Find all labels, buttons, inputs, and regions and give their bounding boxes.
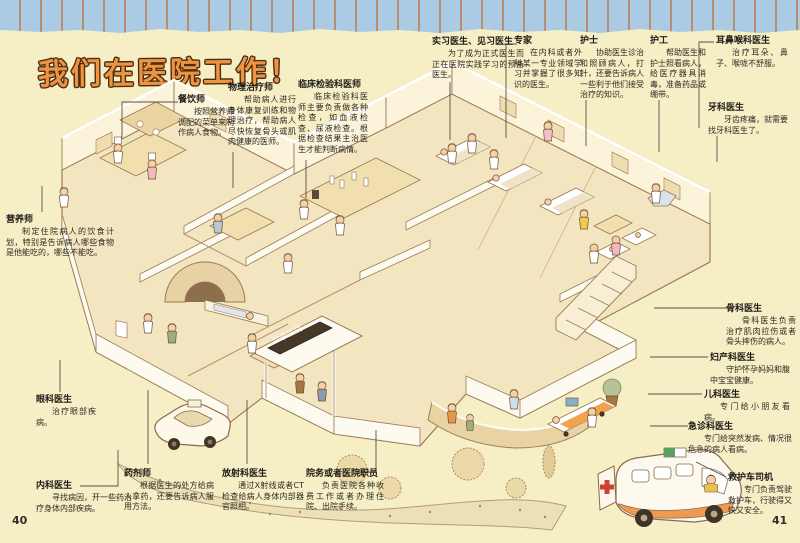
patient-figure xyxy=(214,213,223,233)
lab-technician-figure xyxy=(300,199,309,219)
label-title: 内科医生 xyxy=(36,478,132,491)
label-hospital-staff: 院务或者医院职员 负责医院各种收费工作或者办理住院、出院手续。 xyxy=(306,466,384,513)
label-title: 临床检验科医师 xyxy=(298,77,368,90)
label-title: 药剂师 xyxy=(124,466,214,479)
label-radiologist: 放射科医生 通过X射线或者CT检查给病人身体内部器官照相。 xyxy=(222,466,304,513)
label-body: 治疗眼部疾病。 xyxy=(36,407,96,428)
dentist-figure xyxy=(652,183,661,203)
label-nurse: 护士 协助医生诊治和照顾病人，打针，还要告诉病人一些利于他们接受治疗的知识。 xyxy=(580,33,644,101)
label-body: 制定住院病人的饮食计划，特别是告诉病人哪些食物是他能吃的，哪些不能吃。 xyxy=(6,227,114,259)
label-title: 院务或者医院职员 xyxy=(306,466,384,479)
ambulance-rear-door xyxy=(598,466,616,510)
label-body: 根据医生的处方给病人拿药，还要告诉病人服用方法。 xyxy=(124,481,214,513)
lab-technician-figure xyxy=(336,215,345,235)
label-body: 帮助病人进行身体康复训练和物理治疗，帮助病人尽快恢复骨头或肌肉健康的医师。 xyxy=(228,95,296,148)
label-body: 负责医院各种收费工作或者办理住院、出院手续。 xyxy=(306,481,384,513)
label-intern-doctor: 实习医生、见习医生 为了成为正式医生而正在医院实践学习的预备医生。 xyxy=(432,34,524,81)
label-ophthalmologist: 眼科医生 治疗眼部疾病。 xyxy=(36,392,96,428)
label-pediatrician: 儿科医生 专门给小朋友看病。 xyxy=(704,387,790,423)
label-ent-doctor: 耳鼻喉科医生 治疗耳朵、鼻子、喉咙不舒服。 xyxy=(716,33,788,69)
eye-patient-figure xyxy=(168,323,177,343)
label-body: 牙齿疼痛，就需要找牙科医生了。 xyxy=(708,115,788,136)
label-title: 护士 xyxy=(580,33,644,46)
label-body: 在内科或者外科某一专业领域学习并掌握了很多知识的医生。 xyxy=(514,48,582,90)
label-specialist: 专家 在内科或者外科某一专业领域学习并掌握了很多知识的医生。 xyxy=(514,33,582,90)
label-nutritionist: 营养师 制定住院病人的饮食计划，特别是告诉病人哪些食物是他能吃的，哪些不能吃。 xyxy=(6,212,114,259)
label-physical-therapist: 物理治疗师 帮助病人进行身体康复训练和物理治疗，帮助病人尽快恢复骨头或肌肉健康的… xyxy=(228,80,296,148)
label-body: 专门负责驾驶救护车，行驶得又快又安全。 xyxy=(728,485,792,517)
pharmacist-figure xyxy=(248,333,257,353)
label-title: 护工 xyxy=(650,33,706,46)
er-medic-figure xyxy=(588,407,597,427)
label-title: 耳鼻喉科医生 xyxy=(716,33,788,46)
doctor-figure xyxy=(468,133,477,153)
dietitian-figure xyxy=(60,187,69,207)
label-title: 实习医生、见习医生 xyxy=(432,34,524,47)
nursery-nurse-figure xyxy=(590,244,599,263)
label-obstetrician: 妇产科医生 守护怀孕妈妈和腹中宝宝健康。 xyxy=(710,350,790,386)
label-title: 专家 xyxy=(514,33,582,46)
label-body: 通过X射线或者CT检查给病人身体内部器官照相。 xyxy=(222,481,304,513)
book-page: 我们在医院工作！ xyxy=(0,0,800,543)
label-orthopedist: 骨科医生 骨科医生负责治疗肌肉拉伤或者骨头摔伤的病人。 xyxy=(726,301,796,348)
label-title: 急诊科医生 xyxy=(688,419,792,432)
label-ambulance-driver: 救护车司机 专门负责驾驶救护车，行驶得又快又安全。 xyxy=(728,470,792,517)
label-body: 守护怀孕妈妈和腹中宝宝健康。 xyxy=(710,365,790,386)
label-body: 专门给突然发病、情况很危急的病人看病。 xyxy=(688,434,792,455)
label-body: 骨科医生负责治疗肌肉拉伤或者骨头摔伤的病人。 xyxy=(726,316,796,348)
label-title: 眼科医生 xyxy=(36,392,96,405)
label-title: 餐饮师 xyxy=(178,92,234,105)
label-title: 放射科医生 xyxy=(222,466,304,479)
label-body: 临床检验科医师主要负责做各种检查，如血液检查、尿液检查。根据检查结果主治医生才能… xyxy=(298,92,368,155)
label-body: 帮助医生和护士照看病人，给医疗器具消毒，准备药品或绷带。 xyxy=(650,48,706,101)
nurse-figure xyxy=(544,121,553,141)
label-title: 儿科医生 xyxy=(704,387,790,400)
entrance-visitor-figure xyxy=(318,381,327,401)
label-body: 按照营养师调配的菜单来制作病人食物。 xyxy=(178,107,234,139)
page-number-left: 40 xyxy=(12,514,27,527)
label-title: 牙科医生 xyxy=(708,100,788,113)
mri-technician-figure xyxy=(284,253,293,273)
child-visitor-figure xyxy=(466,414,474,431)
ambulance xyxy=(598,448,741,527)
visitor-figure xyxy=(448,403,457,423)
label-body: 为了成为正式医生而正在医院实践学习的预备医生。 xyxy=(432,49,524,81)
label-body: 治疗耳朵、鼻子、喉咙不舒服。 xyxy=(716,48,788,69)
label-orderly: 护工 帮助医生和护士照看病人，给医疗器具消毒，准备药品或绷带。 xyxy=(650,33,706,101)
label-internist: 内科医生 寻找病因，开一些药治疗身体内部疾病。 xyxy=(36,478,132,514)
cook-figure xyxy=(148,153,157,179)
label-title: 营养师 xyxy=(6,212,114,225)
eye-doctor-figure xyxy=(144,313,153,333)
label-emergency-doctor: 急诊科医生 专门给突然发病、情况很危急的病人看病。 xyxy=(688,419,792,455)
label-title: 妇产科医生 xyxy=(710,350,790,363)
label-catering-cook: 餐饮师 按照营养师调配的菜单来制作病人食物。 xyxy=(178,92,234,139)
label-dentist: 牙科医生 牙齿疼痛，就需要找牙科医生了。 xyxy=(708,100,788,136)
label-title: 救护车司机 xyxy=(728,470,792,483)
label-body: 寻找病因，开一些药治疗身体内部疾病。 xyxy=(36,493,132,514)
label-clinical-lab-doctor: 临床检验科医师 临床检验科医师主要负责做各种检查，如血液检查、尿液检查。根据检查… xyxy=(298,77,368,155)
taxi-roof-sign xyxy=(188,400,201,407)
entrance-visitor-figure xyxy=(296,373,305,393)
cook-figure xyxy=(114,137,123,163)
reception-clerk-figure xyxy=(510,389,519,409)
page-number-right: 41 xyxy=(772,514,787,527)
ambulance-roof-sign-green xyxy=(664,448,675,457)
doctor-figure xyxy=(448,143,457,163)
orderly-figure xyxy=(580,209,589,229)
eye-chart xyxy=(116,321,127,338)
label-title: 骨科医生 xyxy=(726,301,796,314)
label-pharmacist: 药剂师 根据医生的处方给病人拿药，还要告诉病人服用方法。 xyxy=(124,466,214,513)
label-body: 协助医生诊治和照顾病人，打针，还要告诉病人一些利于他们接受治疗的知识。 xyxy=(580,48,644,101)
doctor-figure xyxy=(490,149,499,169)
label-title: 物理治疗师 xyxy=(228,80,296,93)
nursery-nurse-figure xyxy=(612,236,621,255)
